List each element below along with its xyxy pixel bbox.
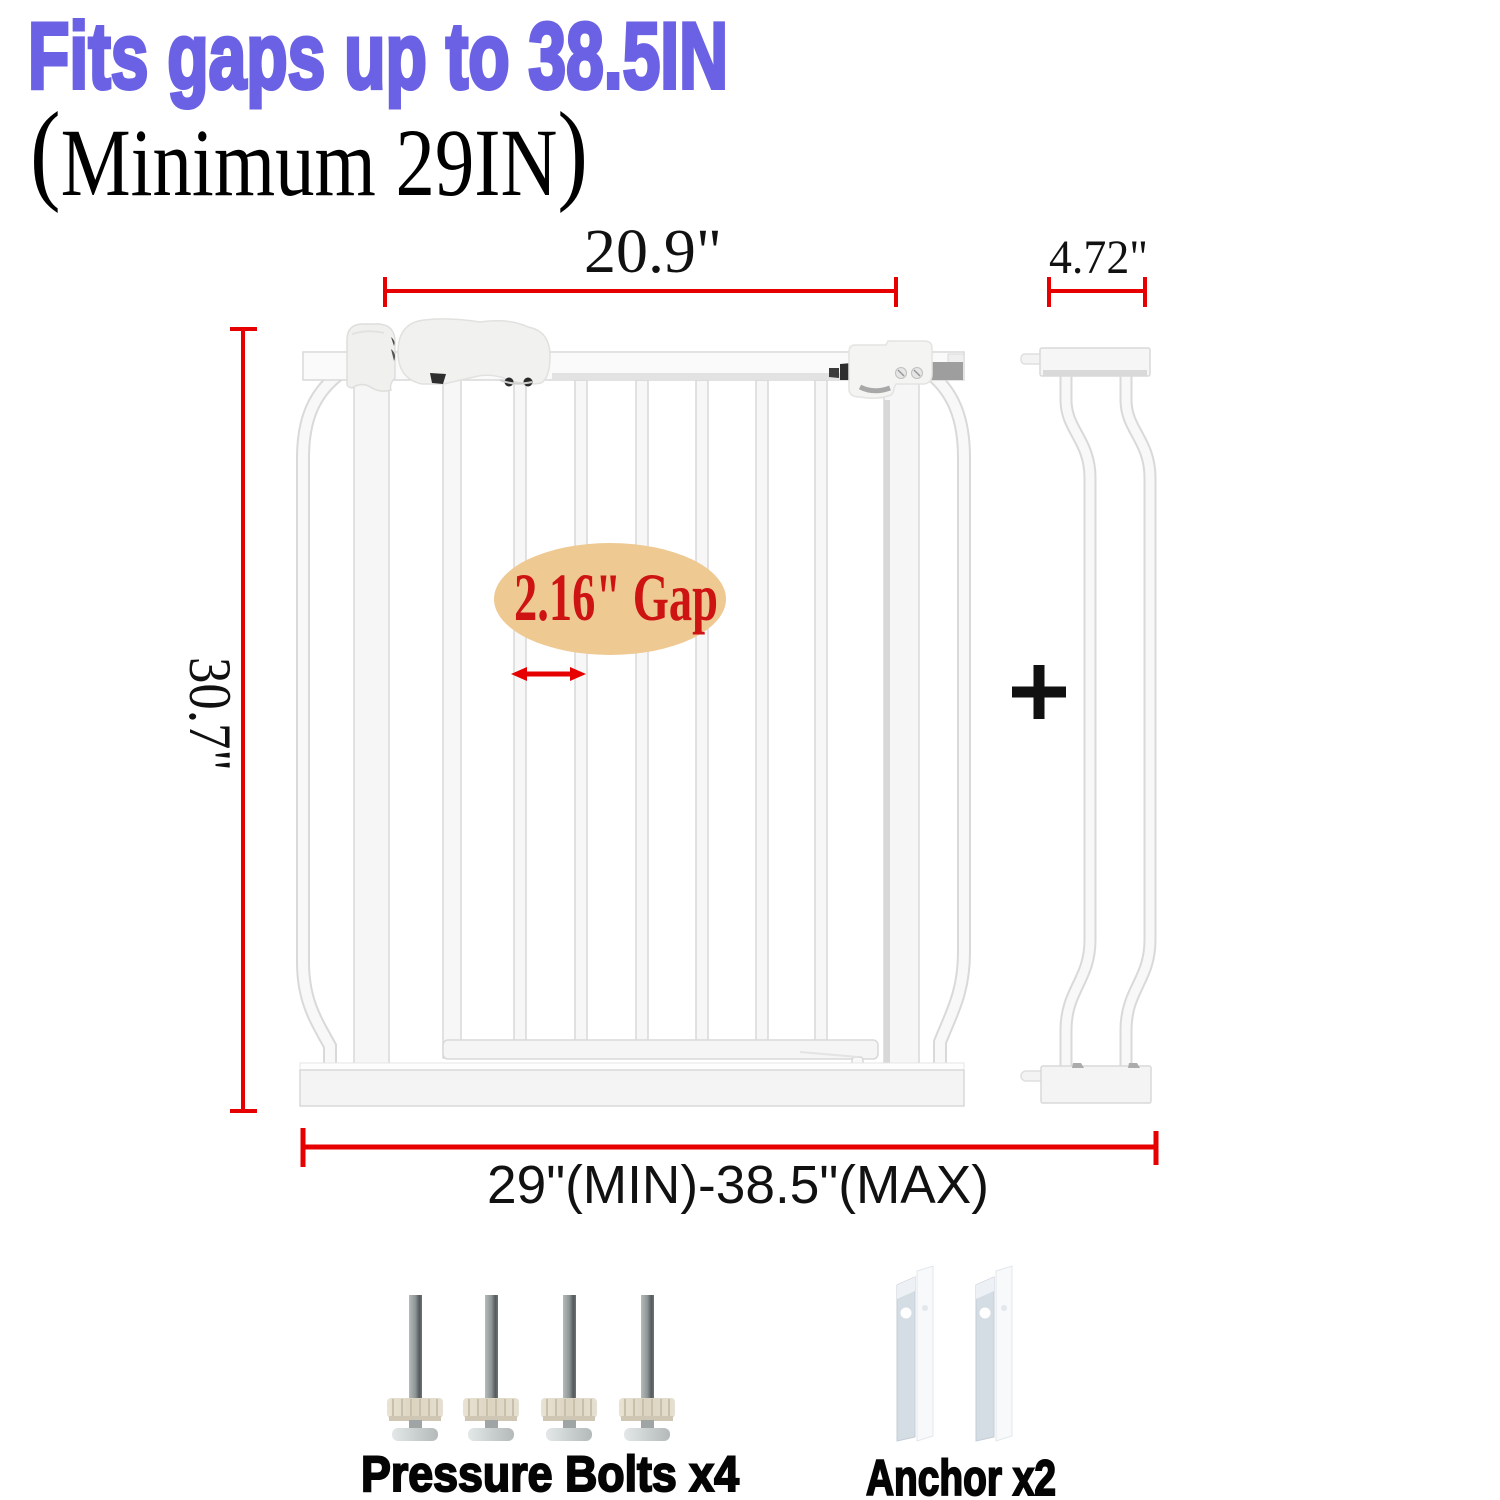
svg-text:Pressure Bolts x4: Pressure Bolts x4 <box>361 1446 739 1500</box>
svg-text:Fits gaps up to 38.5IN: Fits gaps up to 38.5IN <box>28 3 728 108</box>
svg-text:4.72": 4.72" <box>1049 231 1148 284</box>
svg-text:30.7": 30.7" <box>177 657 243 771</box>
svg-text:(Minimum 29IN): (Minimum 29IN) <box>30 90 588 216</box>
svg-text:2.16" Gap: 2.16" Gap <box>514 559 718 635</box>
svg-text:20.9": 20.9" <box>584 218 722 286</box>
svg-text:Anchor x2: Anchor x2 <box>866 1450 1056 1500</box>
svg-text:29"(MIN)-38.5"(MAX): 29"(MIN)-38.5"(MAX) <box>487 1155 989 1215</box>
